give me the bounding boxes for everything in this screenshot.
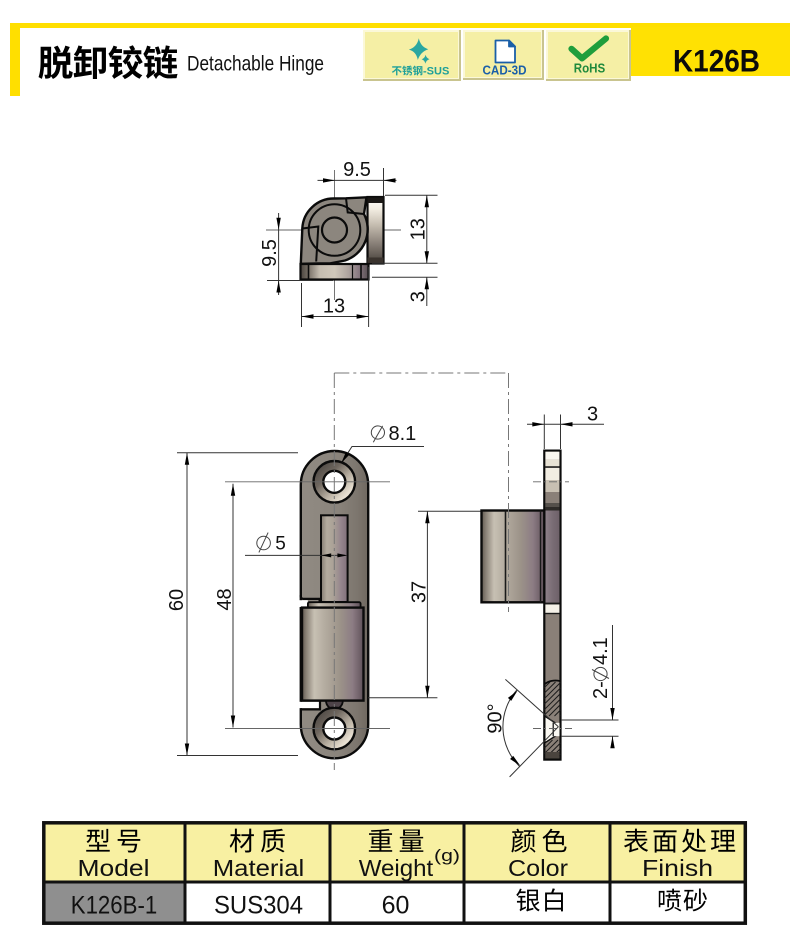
svg-text:Color: Color xyxy=(508,855,568,881)
svg-text:Detachable Hinge: Detachable Hinge xyxy=(187,52,324,76)
svg-text:13: 13 xyxy=(408,218,430,240)
svg-text:Weight: Weight xyxy=(359,855,434,881)
svg-text:60: 60 xyxy=(382,892,410,920)
svg-text:SUS304: SUS304 xyxy=(214,892,303,920)
svg-text:Material: Material xyxy=(213,855,305,881)
svg-text:9.5: 9.5 xyxy=(259,239,281,267)
svg-text:K126B: K126B xyxy=(673,43,760,79)
svg-text:5: 5 xyxy=(275,534,286,555)
svg-text:K126B-1: K126B-1 xyxy=(71,892,158,920)
svg-text:3: 3 xyxy=(408,291,430,302)
svg-text:Model: Model xyxy=(78,855,150,881)
svg-text:90°: 90° xyxy=(485,703,507,733)
svg-text:48: 48 xyxy=(214,588,236,610)
svg-text:CAD-3D: CAD-3D xyxy=(483,64,527,78)
svg-text:3: 3 xyxy=(587,404,598,426)
svg-text:37: 37 xyxy=(409,581,431,603)
svg-text:2-: 2- xyxy=(590,681,612,699)
svg-text:(g): (g) xyxy=(434,846,460,865)
svg-text:-SUS: -SUS xyxy=(423,66,449,78)
svg-text:4.1: 4.1 xyxy=(590,637,612,665)
svg-text:Finish: Finish xyxy=(642,855,713,881)
svg-text:RoHS: RoHS xyxy=(574,62,606,76)
svg-text:9.5: 9.5 xyxy=(343,159,371,181)
svg-text:13: 13 xyxy=(323,296,345,318)
svg-text:60: 60 xyxy=(166,589,188,611)
svg-text:8.1: 8.1 xyxy=(389,423,417,445)
